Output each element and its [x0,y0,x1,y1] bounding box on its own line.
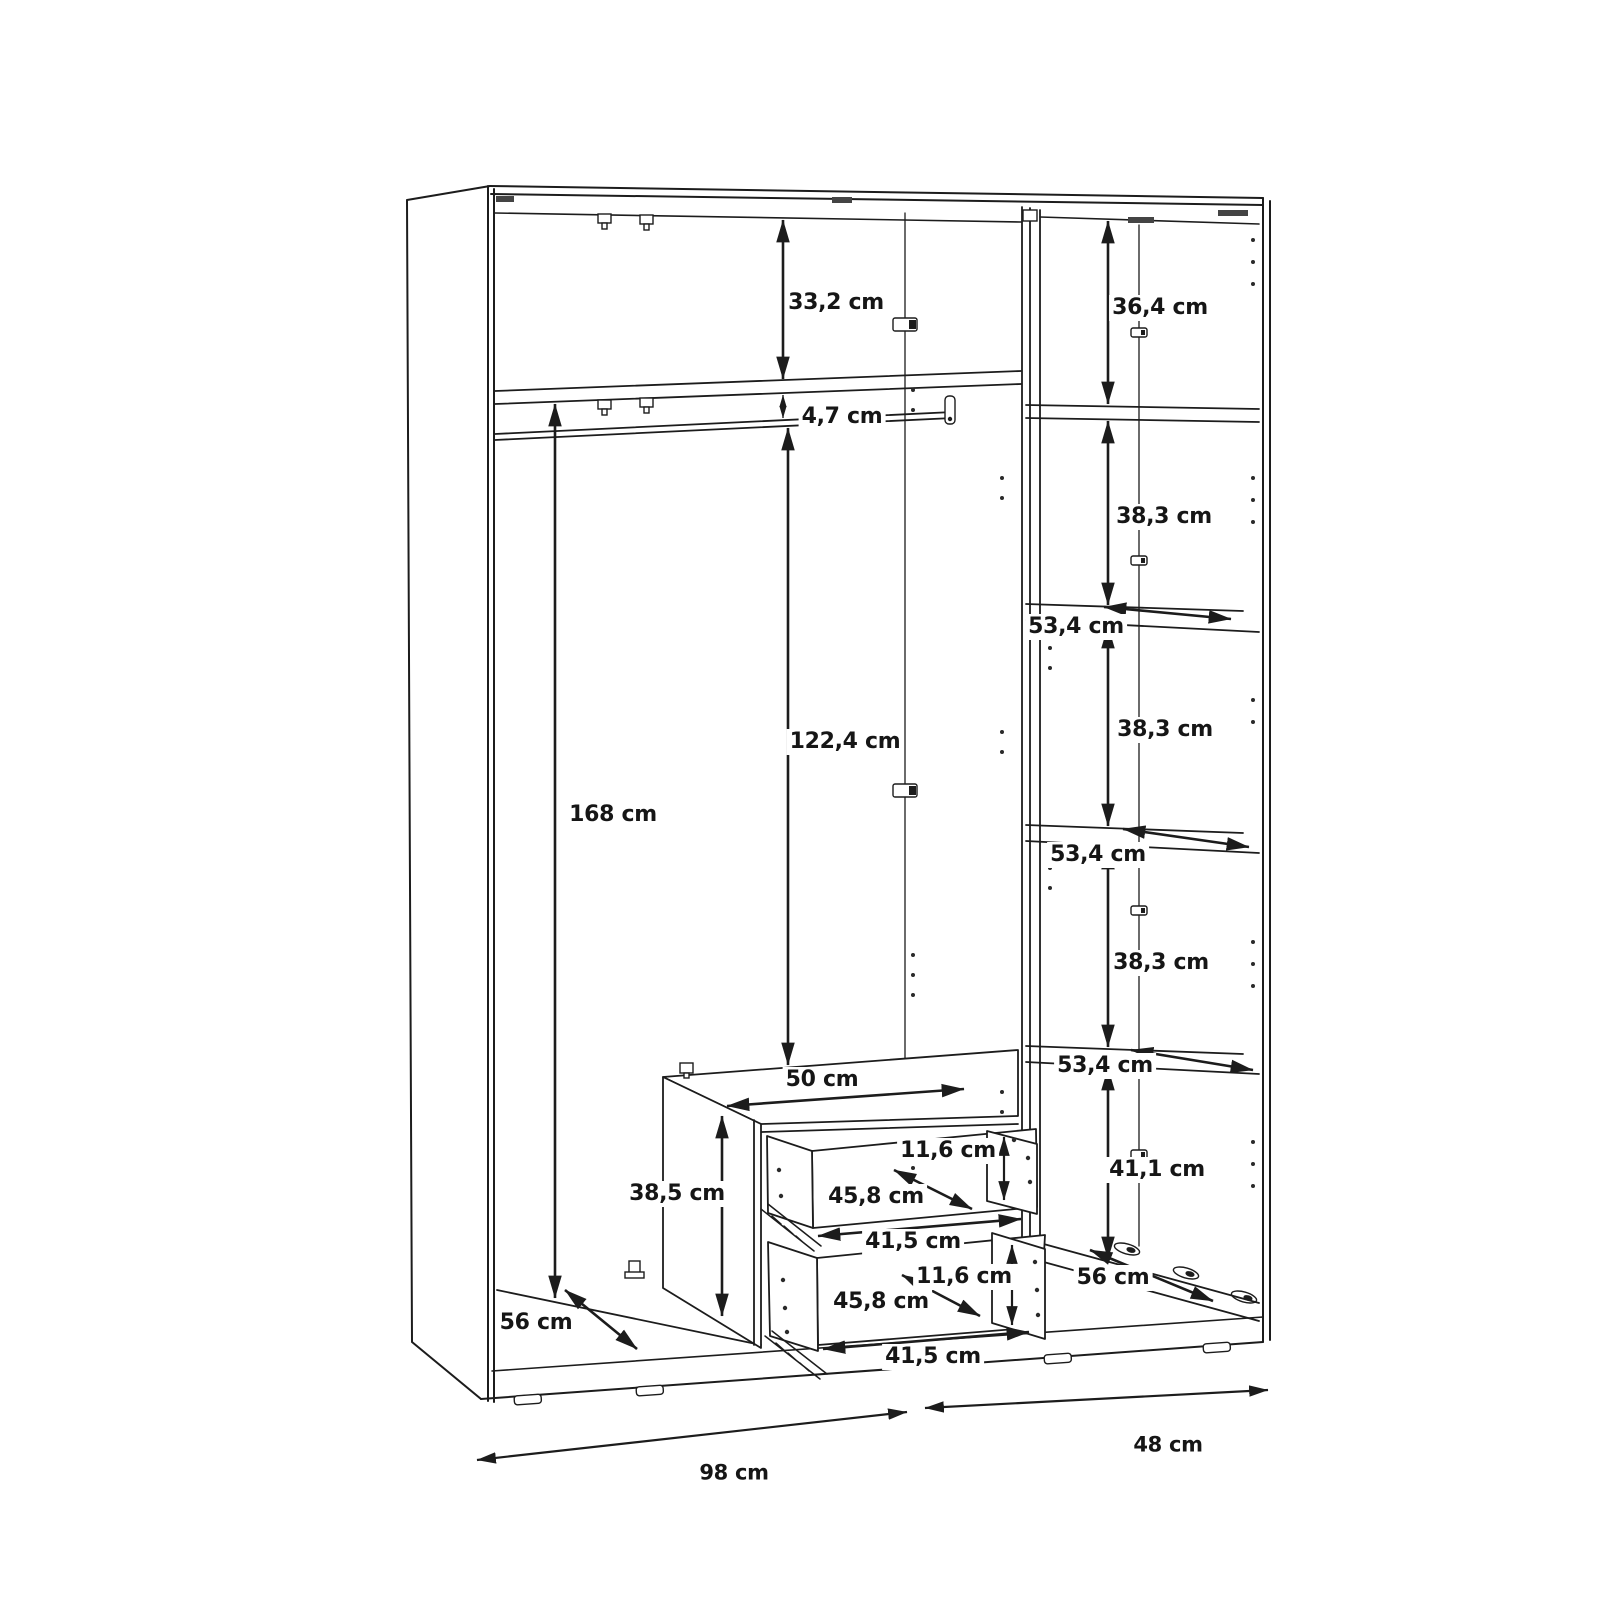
drawer1-front-panel [767,1136,813,1228]
door-hinge [893,784,917,797]
drawer-unit [663,1050,1045,1379]
shelf-pin [1131,328,1147,337]
arrow-left-floor-depth [565,1290,637,1349]
dim-drawer1-depth: 45,8 cm [825,1184,927,1210]
dim-right-gap-3: 38,3 cm [1110,950,1212,976]
dim-left-floor-depth: 56 cm [497,1310,576,1336]
dim-left-top-height: 33,2 cm [785,290,887,316]
dim-right-floor-depth: 56 cm [1074,1265,1153,1291]
dim-left-unit-width: 98 cm [696,1461,771,1486]
dim-drawer-unit-width: 50 cm [783,1067,862,1093]
top-rail-fitting [1218,210,1248,216]
dim-shelf-rod-gap: 4,7 cm [799,404,886,430]
ceiling-bracket [598,214,611,229]
dim-drawer2-height: 11,6 cm [913,1264,1015,1290]
dim-right-bottom-height: 41,1 cm [1106,1157,1208,1183]
dim-drawer1-width: 41,5 cm [862,1229,964,1255]
top-rail-fitting [496,196,514,202]
top-rail-fitting [832,197,852,203]
shelf-pin [1131,556,1147,565]
shelf-pin [1131,906,1147,915]
dim-right-gap-1: 38,3 cm [1113,504,1215,530]
top-edge [490,186,1263,205]
line-drawing [0,0,1600,1600]
bottom-edge [481,1342,1263,1399]
drawer-unit-top-thickness [761,1124,1018,1132]
under-shelf-bracket [598,400,611,415]
dim-rod-to-drawers: 122,4 cm [787,729,904,755]
dim-right-unit-width: 48 cm [1130,1433,1205,1458]
under-shelf-bracket [640,398,653,413]
dim-drawer1-height: 11,6 cm [897,1138,999,1164]
dim-drawer2-width: 41,5 cm [882,1344,984,1370]
dim-right-top-height: 36,4 cm [1109,295,1211,321]
arrow-left-unit-width [477,1412,907,1460]
wardrobe-dimension-diagram: 33,2 cm 4,7 cm 168 cm 122,4 cm 36,4 cm 3… [0,0,1600,1600]
dim-right-shelf-depth-1: 53,4 cm [1025,614,1127,640]
dim-drawer-unit-height: 38,5 cm [626,1181,728,1207]
ceiling-bracket [640,215,653,230]
front-left-edge [488,186,494,1402]
dim-right-shelf-depth-2: 53,4 cm [1047,842,1149,868]
fixed-shelf [495,371,1021,404]
top-rail-fitting [1128,217,1154,223]
right-side-panel [1263,198,1270,1342]
door-hinge [893,318,917,331]
drawer-unit-left-panel [663,1077,761,1348]
dim-right-shelf-depth-3: 53,4 cm [1054,1053,1156,1079]
shelf-1 [1026,405,1259,422]
seam-top-bracket [1023,210,1037,221]
left-side-panel [407,186,490,1399]
ceiling-left-unit [495,213,1021,222]
rod-end-bracket [945,396,955,424]
arrow-right-unit-width [925,1390,1268,1408]
dim-left-interior-height: 168 cm [566,802,660,828]
floor-bracket [625,1261,644,1278]
dim-drawer2-depth: 45,8 cm [830,1289,932,1315]
dim-right-gap-2: 38,3 cm [1114,717,1216,743]
